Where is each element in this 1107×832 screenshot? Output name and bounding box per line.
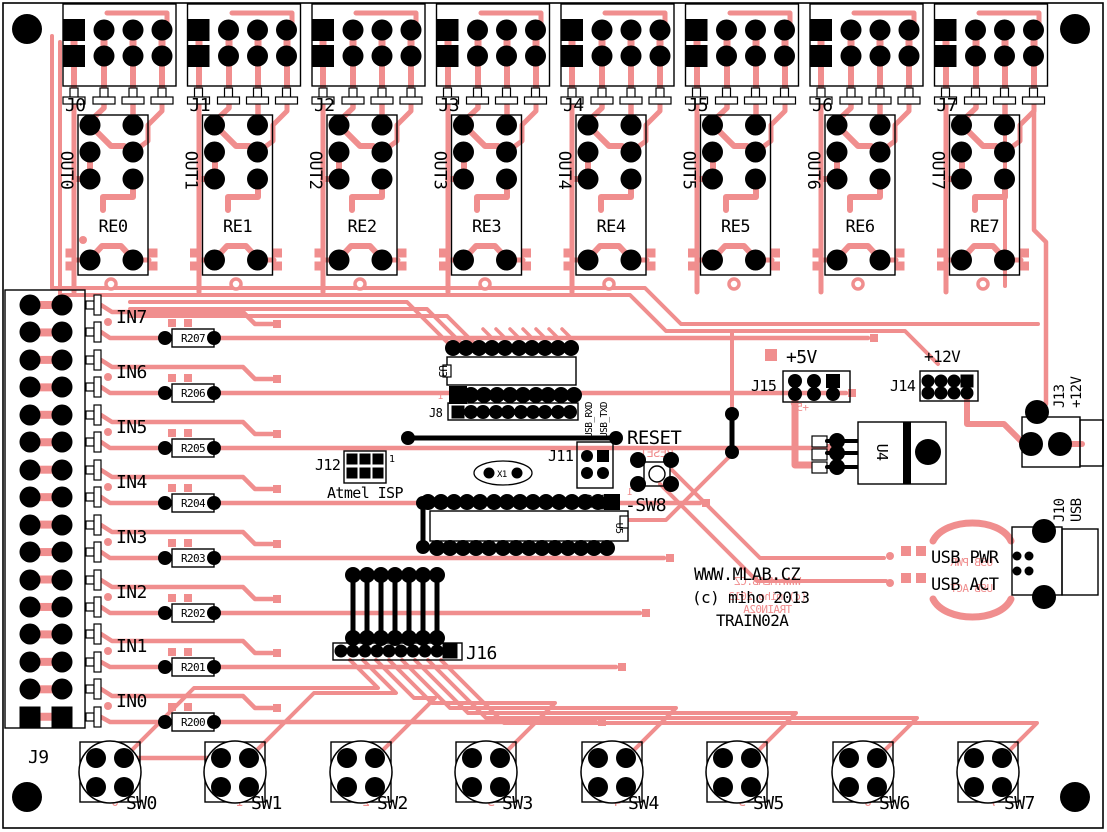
x1-label: X1 [497,470,507,480]
input-label: IN0 [116,691,147,712]
pad [86,748,106,768]
pad [52,652,73,673]
j15-label: J15 [751,377,776,395]
pad [329,115,350,136]
pad [948,387,961,400]
pad-square [52,707,73,728]
pad-square [686,45,708,67]
pad [496,250,517,271]
terminal-mark [94,377,101,397]
pad [329,169,350,190]
via-dot [104,373,112,381]
pad [123,20,144,41]
terminal-mark [840,97,862,104]
pad [829,459,845,475]
terminal-mark [94,432,101,452]
pad [239,748,259,768]
pad [123,115,144,136]
input-label: IN3 [116,527,147,548]
switch-label: SW4 [628,793,659,814]
pad [453,250,474,271]
pad [80,142,101,163]
via-dot [104,593,112,601]
pad [616,748,636,768]
smd-pad [1020,249,1029,258]
pad [467,46,488,67]
terminal-mark [86,493,94,501]
usb-pwr-label: USB PWR [931,548,1000,568]
pad [951,142,972,163]
pad [20,322,41,343]
via-dot [886,552,894,560]
pad [716,20,737,41]
pad [373,567,389,583]
pad-square [561,45,583,67]
isp-name-label: Atmel ISP [327,484,403,502]
pad [276,20,297,41]
pad [372,142,393,163]
pad [621,46,642,67]
connector-label: J0 [65,95,85,116]
pad [247,46,268,67]
smd-pad [168,594,176,602]
switch-label: SW3 [502,793,533,814]
pad [247,250,268,271]
pad [365,748,385,768]
pad [965,20,986,41]
silk-mark [812,436,827,447]
pad-square [312,45,334,67]
smd-pad [168,484,176,492]
pad-square [686,19,708,41]
pad [401,46,422,67]
terminal-mark [86,630,94,638]
smd-pad [522,262,531,271]
sw8-label: -SW8 [625,495,666,516]
pad [951,250,972,271]
smd-pad [184,319,192,327]
smd-pad [315,262,324,271]
button-plunger [649,466,665,482]
pad [52,679,73,700]
pad [745,142,766,163]
pad-square [63,19,85,41]
pad [951,115,972,136]
u4-label: U4 [873,444,891,461]
pad [525,20,546,41]
product-label: TRAIN02A [716,611,789,630]
terminal-mark [86,301,94,309]
resistor-label: R200 [181,716,205,729]
pad [870,20,891,41]
switch-label: SW6 [879,793,910,814]
pad [496,169,517,190]
site-label: WWW.MLAB.CZ [694,565,800,585]
connector-label: J7 [937,95,957,116]
pad-square [188,19,210,41]
pad [20,460,41,481]
terminal-mark [94,460,101,480]
pad [827,250,848,271]
pad [590,494,606,510]
via [480,279,490,289]
smd-pad [1020,262,1029,271]
j8-label: J8 [429,406,443,420]
pad [839,748,859,768]
smd-pad [666,554,674,562]
pad [870,169,891,190]
terminal-mark [774,97,796,104]
pad [20,542,41,563]
pad [204,115,225,136]
smd-pad [901,546,911,556]
smd-pad [273,249,282,258]
pad [526,405,540,419]
pad [745,46,766,67]
pad-square [961,375,974,388]
pad [211,748,231,768]
pad [20,679,41,700]
pad-square [935,45,957,67]
smd-pad [184,429,192,437]
pad [464,405,478,419]
terminal-mark [276,97,298,104]
pad [1023,20,1044,41]
pad [965,46,986,67]
pad [922,387,935,400]
terminal-mark [400,97,422,104]
pad [52,432,73,453]
pad [86,777,106,797]
pad [563,405,577,419]
pad [713,748,733,768]
usb-txd-label: USB_TXD [599,401,610,438]
pad [578,115,599,136]
pad [922,375,935,388]
input-label: IN4 [116,472,147,493]
mounting-hole [12,782,42,812]
pad-square [188,45,210,67]
smd-pad [184,703,192,711]
input-label: IN2 [116,582,147,603]
smd-pad [564,249,573,258]
pad-square [347,454,358,465]
pad [964,777,984,797]
pad [650,46,671,67]
pad [496,115,517,136]
pad [609,431,623,445]
out-label: OUT0 [56,151,76,190]
pad [841,46,862,67]
pad [218,20,239,41]
pad [1025,552,1034,561]
pad [484,468,495,479]
resistor-label: R205 [181,442,205,455]
pad [716,46,737,67]
regulator-tab-bar [903,422,911,484]
pad [158,441,172,455]
terminal-mark [94,679,101,699]
pad [702,250,723,271]
pad [335,645,348,658]
smd-pad [937,262,946,271]
pad [415,567,431,583]
u5-label: U5 [613,523,624,534]
usb-rxd-label: USB_RXD [584,401,595,438]
smd-pad [688,249,697,258]
j11-label: J11 [548,447,574,465]
smd-pad [184,594,192,602]
terminal-mark [591,97,613,104]
silk-mark [812,449,827,460]
pad [218,46,239,67]
smd-pad [813,262,822,271]
pad [20,487,41,508]
pad [158,496,172,510]
pad [1025,400,1049,424]
pad [20,597,41,618]
via [729,279,739,289]
pad [52,597,73,618]
smd-pad [149,262,158,271]
via [604,279,614,289]
terminal-mark [94,405,101,425]
pad-square [360,454,371,465]
pad [994,115,1015,136]
smd-pad [870,334,878,342]
via-dot [104,538,112,546]
pad [52,405,73,426]
terminal-mark [86,383,94,391]
pad-square [597,450,609,462]
pad [80,250,101,271]
switch-label: SW2 [377,793,408,814]
pad [774,20,795,41]
pad [20,624,41,645]
pad-square [810,19,832,41]
pad [961,387,974,400]
pad [114,748,134,768]
terminal-mark [94,322,101,342]
via [853,279,863,289]
pad [337,777,357,797]
terminal-mark [86,438,94,446]
pad [467,20,488,41]
terminal-mark [371,97,393,104]
pad [152,20,173,41]
j13-label: J13 [1052,384,1068,408]
pad [247,169,268,190]
resistor-label: R206 [181,387,205,400]
smd-pad [168,374,176,382]
relay-label: RE5 [721,217,750,237]
smd-pad [771,262,780,271]
pad [899,46,920,67]
smd-pad [184,484,192,492]
pad [453,115,474,136]
via-dot [104,318,112,326]
out-label: OUT4 [554,151,574,190]
pad [551,405,565,419]
pad [453,142,474,163]
connector-label: J6 [812,95,832,116]
smd-pad [564,262,573,271]
terminal-mark [94,597,101,617]
terminal-mark [525,97,547,104]
pad [994,142,1015,163]
pad [745,250,766,271]
terminal-mark [151,97,173,104]
terminal-mark [965,97,987,104]
pad [788,387,802,401]
terminal-mark [94,707,101,727]
smd-pad [315,249,324,258]
switch-label: SW7 [1004,793,1035,814]
pad-square [312,19,334,41]
pad [935,387,948,400]
terminal-mark [122,97,144,104]
pad [419,645,432,658]
pad [123,250,144,271]
pad [476,405,490,419]
smd-pad [618,663,626,671]
pad [329,250,350,271]
smd-pad [168,429,176,437]
pad [702,142,723,163]
pad [158,551,172,565]
pad [80,115,101,136]
smd-pad [190,262,199,271]
out-label: OUT6 [803,151,823,190]
pad [599,540,615,556]
pad [359,567,375,583]
smd-pad [273,595,281,603]
relay-label: RE4 [597,217,626,237]
pad [597,467,609,479]
pad [1025,567,1034,576]
regulator-hole [915,439,941,465]
pad [713,777,733,797]
pad [158,386,172,400]
pad [204,142,225,163]
pad [663,452,679,468]
smd-pad [647,262,656,271]
pad [52,377,73,398]
out-label: OUT7 [928,151,948,190]
pad [472,494,488,510]
via-dot [104,428,112,436]
resistor-label: R202 [181,607,205,620]
pad [20,515,41,536]
pad [496,142,517,163]
pad [383,645,396,658]
pad [788,374,802,388]
pad [1032,585,1056,609]
pad [401,20,422,41]
smd-pad [937,249,946,258]
pad [329,142,350,163]
pcb-screenshot: 765432101RESET101234567+5VUSB PWRUSB ACT… [0,0,1107,832]
pad [650,20,671,41]
input-label: IN5 [116,417,147,438]
copyright-label: (c) miho 2013 [692,588,809,607]
smd-pad [149,249,158,258]
terminal-mark [86,713,94,721]
pad [994,169,1015,190]
relay-label: RE1 [223,217,252,237]
smd-pad [168,539,176,547]
pad [621,20,642,41]
pad-square [452,406,465,419]
smd-pad [273,262,282,271]
connector-label: J5 [688,95,708,116]
pad [94,20,115,41]
pad [578,142,599,163]
pad [538,405,552,419]
pad [964,748,984,768]
pad [345,567,361,583]
pad [395,645,408,658]
pad [621,115,642,136]
pad [337,748,357,768]
pcb-board: 765432101RESET101234567+5VUSB PWRUSB ACT… [0,0,1107,832]
pad [247,142,268,163]
terminal-mark [94,350,101,370]
usb-type-label: USB [1069,498,1085,522]
j12-pin1: 1 [389,454,395,465]
terminal-mark [86,328,94,336]
pad [870,250,891,271]
smd-pad [273,320,281,328]
pad-square [373,454,384,465]
pad [621,169,642,190]
j16-label: J16 [466,643,497,664]
input-label: IN1 [116,636,147,657]
terminal-mark [247,97,269,104]
terminal-mark [86,411,94,419]
silk-mark [812,462,827,473]
pad [211,777,231,797]
pad [870,46,891,67]
terminal-mark [86,658,94,666]
pad [948,375,961,388]
terminal-mark [94,515,101,535]
smd-pad [184,539,192,547]
pad [372,20,393,41]
pad-square [604,494,620,510]
pad [152,46,173,67]
pad-square [360,468,371,479]
pad [52,322,73,343]
smd-pad [398,262,407,271]
pad [372,115,393,136]
terminal-mark [496,97,518,104]
via-dot [104,483,112,491]
smd-pad [896,249,905,258]
pad [20,570,41,591]
pad [497,340,513,356]
switch-label: SW5 [753,793,784,814]
pad-square [437,45,459,67]
pad [807,374,821,388]
switch-label: SW1 [251,793,282,814]
pad-square [63,45,85,67]
pad [371,645,384,658]
smd-pad [765,349,777,361]
pad [725,407,739,421]
pad [52,295,73,316]
pad [158,660,172,674]
